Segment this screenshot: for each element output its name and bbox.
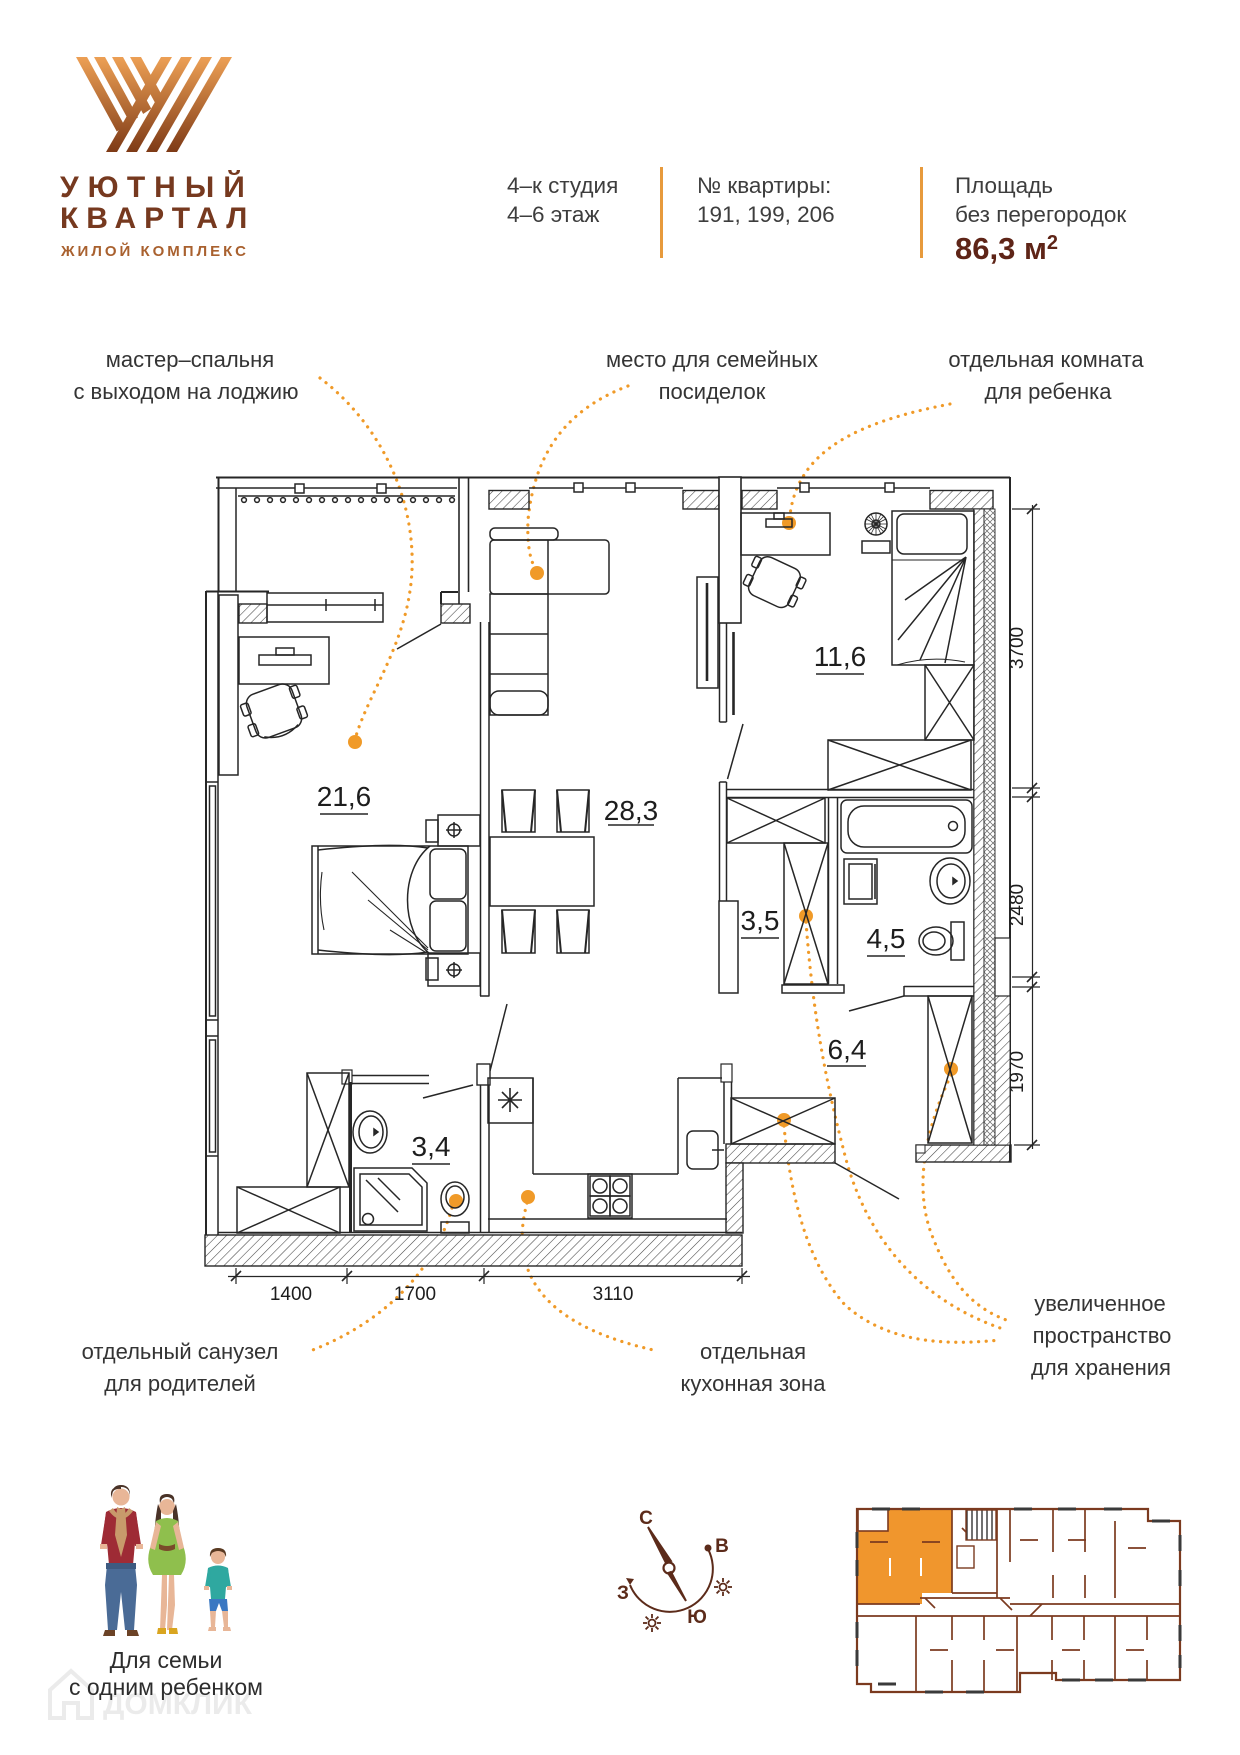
svg-text:Площадь: Площадь (955, 173, 1053, 198)
svg-text:отдельный санузел: отдельный санузел (82, 1339, 279, 1364)
svg-text:№ квартиры:: № квартиры: (697, 173, 831, 198)
svg-text:мастер–спальня: мастер–спальня (106, 347, 274, 372)
svg-text:1400: 1400 (270, 1284, 312, 1305)
svg-text:для родителей: для родителей (104, 1371, 256, 1396)
svg-text:3,4: 3,4 (412, 1131, 451, 1162)
svg-text:З: З (617, 1583, 629, 1604)
svg-text:для хранения: для хранения (1031, 1355, 1171, 1380)
svg-text:ЖИЛОЙ КОМПЛЕКС: ЖИЛОЙ КОМПЛЕКС (60, 242, 249, 260)
svg-text:отдельная комната: отдельная комната (948, 347, 1144, 372)
svg-text:место для семейных: место для семейных (606, 347, 818, 372)
svg-text:6,4: 6,4 (828, 1034, 867, 1065)
svg-text:отдельная: отдельная (700, 1339, 806, 1364)
svg-text:4,5: 4,5 (867, 923, 906, 954)
svg-text:Ю: Ю (687, 1607, 707, 1628)
svg-text:пространство: пространство (1033, 1323, 1172, 1348)
svg-text:4–6 этаж: 4–6 этаж (507, 202, 599, 227)
svg-text:УЮТНЫЙ: УЮТНЫЙ (60, 170, 254, 204)
svg-text:посиделок: посиделок (659, 379, 766, 404)
svg-text:2480: 2480 (1007, 884, 1028, 926)
svg-text:3110: 3110 (593, 1284, 634, 1305)
svg-text:86,3 м2: 86,3 м2 (955, 231, 1058, 266)
svg-text:С: С (639, 1508, 653, 1529)
svg-text:28,3: 28,3 (604, 795, 659, 826)
svg-text:увеличенное: увеличенное (1034, 1291, 1166, 1316)
svg-text:1700: 1700 (394, 1284, 436, 1305)
svg-text:3,5: 3,5 (741, 905, 780, 936)
svg-text:1970: 1970 (1007, 1051, 1028, 1093)
svg-text:191, 199, 206: 191, 199, 206 (697, 202, 835, 227)
svg-text:Для семьи: Для семьи (110, 1647, 223, 1673)
svg-text:В: В (715, 1536, 729, 1557)
svg-text:3700: 3700 (1007, 627, 1028, 669)
svg-text:КВАРТАЛ: КВАРТАЛ (60, 202, 255, 235)
svg-text:без перегородок: без перегородок (955, 202, 1126, 227)
svg-text:4–к студия: 4–к студия (507, 173, 618, 198)
svg-text:для ребенка: для ребенка (984, 379, 1112, 404)
svg-text:с выходом на лоджию: с выходом на лоджию (73, 379, 298, 404)
svg-text:с одним ребенком: с одним ребенком (69, 1674, 263, 1700)
svg-text:11,6: 11,6 (814, 641, 866, 672)
svg-text:кухонная зона: кухонная зона (681, 1371, 827, 1396)
svg-text:21,6: 21,6 (317, 781, 372, 812)
